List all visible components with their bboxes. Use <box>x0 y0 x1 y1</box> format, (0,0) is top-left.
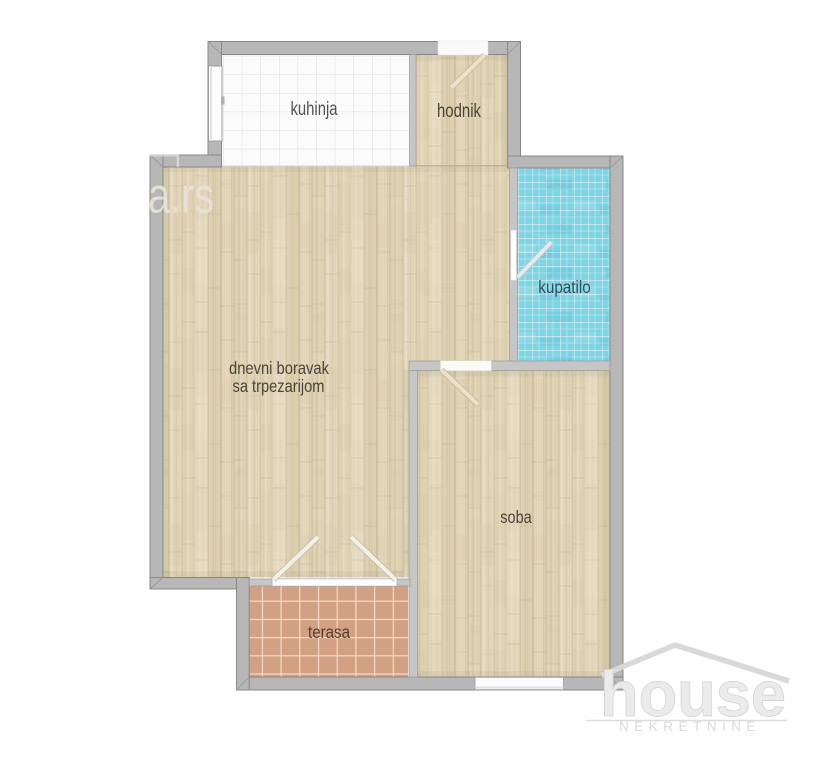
svg-text:NEKRETNINE: NEKRETNINE <box>619 719 761 734</box>
svg-text:dnevni boravak: dnevni boravak <box>229 358 329 378</box>
svg-text:kuhinja: kuhinja <box>291 99 338 120</box>
svg-text:hodnik: hodnik <box>437 101 481 122</box>
svg-text:kupatilo: kupatilo <box>538 277 591 297</box>
svg-text:soba: soba <box>500 507 532 527</box>
svg-text:terasa: terasa <box>308 622 350 642</box>
svg-text:sa trpezarijom: sa trpezarijom <box>233 376 325 396</box>
svg-text:a.rs: a.rs <box>148 168 214 224</box>
